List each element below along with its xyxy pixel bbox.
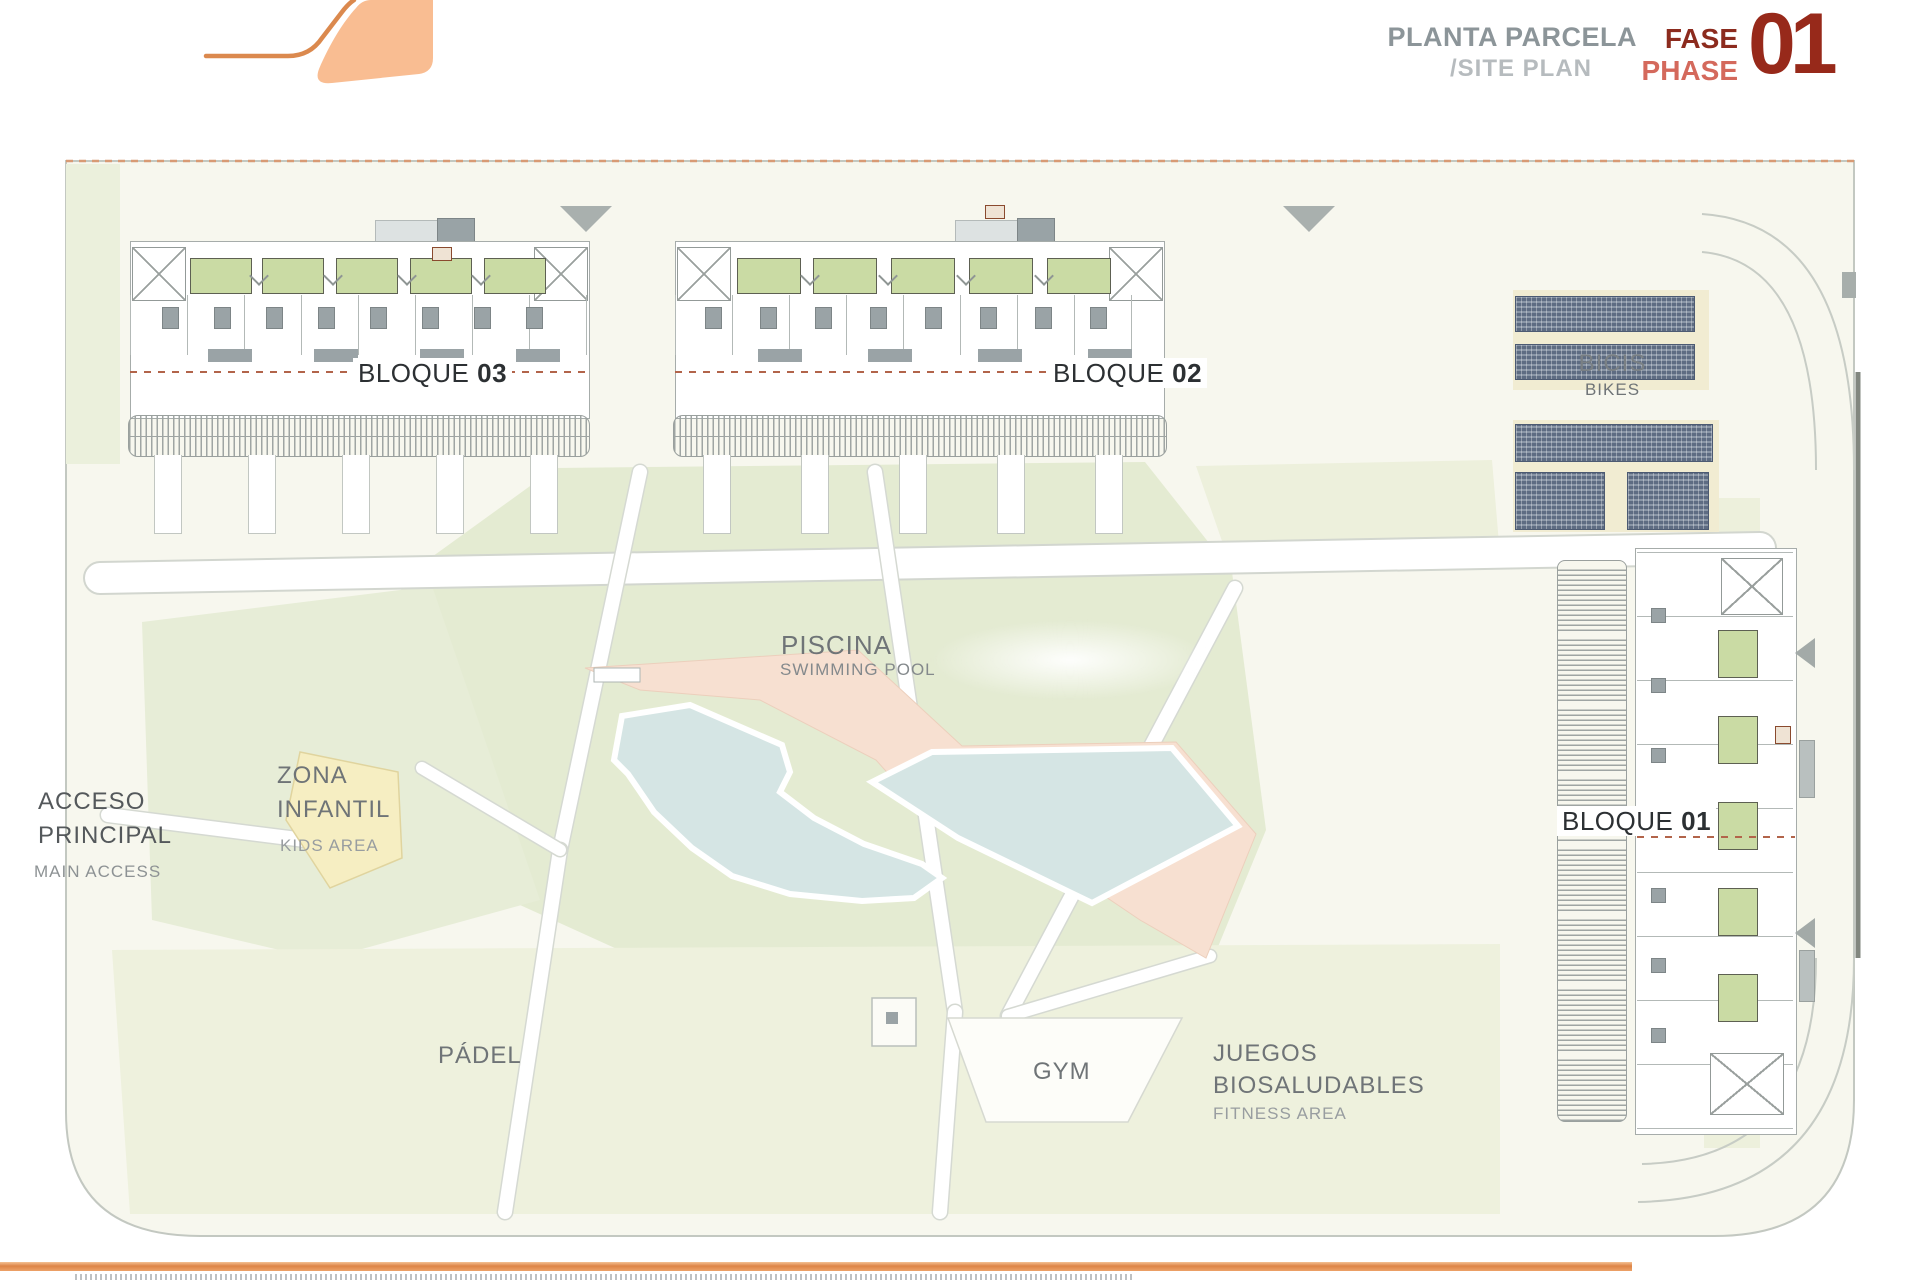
terrace-garden: [1718, 802, 1758, 850]
furniture: [1651, 1028, 1666, 1043]
label-kids-area: KIDS AREA: [280, 836, 379, 856]
label-zona: ZONA: [277, 762, 348, 790]
terrace-garden: [336, 258, 398, 294]
label-piscina: PISCINA: [781, 630, 892, 661]
parking-pergola: [128, 415, 590, 457]
furniture: [870, 307, 887, 329]
gym-equipment: [886, 1012, 898, 1024]
furniture: [474, 307, 491, 329]
furniture: [1651, 748, 1666, 763]
terrace-garden: [484, 258, 546, 294]
label-gym: GYM: [1033, 1058, 1091, 1086]
furniture: [760, 307, 777, 329]
terrace-garden: [813, 258, 877, 294]
walkway-stub: [436, 455, 464, 534]
corner-unit: [1710, 1053, 1784, 1115]
furniture: [1651, 678, 1666, 693]
furniture: [1090, 307, 1107, 329]
furniture: [980, 307, 997, 329]
furniture: [1651, 888, 1666, 903]
bike-rack: [1515, 424, 1713, 462]
bench: [868, 349, 912, 362]
label-bicis: BICIS: [1505, 350, 1720, 378]
watermark: [930, 620, 1210, 700]
bench: [314, 349, 358, 362]
label-main-access: MAIN ACCESS: [34, 862, 161, 882]
corner-unit: [1721, 558, 1783, 615]
label-biosaludables: BIOSALUDABLES: [1213, 1072, 1425, 1100]
label-bloque-03: BLOQUE 03: [353, 358, 512, 389]
bike-rack: [1627, 472, 1709, 530]
entrance-marker-icon: [1795, 918, 1815, 948]
terrace-garden: [262, 258, 324, 294]
walkway-stub: [801, 455, 829, 534]
page: { "header": { "title_es": "PLANTA PARCEL…: [0, 0, 1920, 1280]
utility-box: [1775, 726, 1791, 744]
label-infantil: INFANTIL: [277, 796, 390, 824]
bloque-word: BLOQUE: [1053, 358, 1164, 388]
bloque-number: 03: [477, 358, 507, 388]
bench: [978, 349, 1022, 362]
furniture: [422, 307, 439, 329]
parking-pergola: [1557, 560, 1627, 1122]
bike-parking-area: [1505, 268, 1720, 536]
bike-rack: [1515, 296, 1695, 332]
building-bloque-01: [1505, 548, 1817, 1140]
furniture: [705, 307, 722, 329]
walkway-stub: [342, 455, 370, 534]
bloque-word: BLOQUE: [1562, 806, 1673, 836]
bench: [516, 349, 560, 362]
parking-pergola: [673, 415, 1167, 457]
furniture: [1651, 608, 1666, 623]
bloque-number: 02: [1172, 358, 1202, 388]
walkway-stub: [1095, 455, 1123, 534]
terrace-garden: [410, 258, 472, 294]
furniture: [1035, 307, 1052, 329]
label-fitness-area: FITNESS AREA: [1213, 1104, 1347, 1124]
walkway-stub: [899, 455, 927, 534]
label-juegos: JUEGOS: [1213, 1040, 1318, 1068]
entrance-marker-icon: [1795, 638, 1815, 668]
unit-dividers: [130, 295, 588, 355]
label-acceso: ACCESO: [38, 788, 145, 816]
furniture: [925, 307, 942, 329]
walkway-stub: [248, 455, 276, 534]
terrace-garden: [1047, 258, 1111, 294]
furniture: [266, 307, 283, 329]
furniture: [318, 307, 335, 329]
terrace-garden: [190, 258, 252, 294]
pool-steps: [594, 668, 640, 682]
utility-box: [985, 205, 1005, 219]
walkway-stub: [154, 455, 182, 534]
bike-rack: [1515, 472, 1605, 530]
terrace-garden: [737, 258, 801, 294]
walkway-stub: [703, 455, 731, 534]
label-swimming-pool: SWIMMING POOL: [780, 660, 936, 680]
bench: [208, 349, 252, 362]
terrace-garden: [1718, 974, 1758, 1022]
furniture: [1651, 958, 1666, 973]
logo-shape: [318, 0, 433, 83]
furniture: [370, 307, 387, 329]
terrace-garden: [1718, 716, 1758, 764]
terrace-garden: [1718, 630, 1758, 678]
label-principal: PRINCIPAL: [38, 822, 172, 850]
corner-unit: [1109, 247, 1163, 301]
furniture: [526, 307, 543, 329]
furniture: [162, 307, 179, 329]
side-pad: [1799, 740, 1815, 798]
utility-box: [432, 247, 452, 261]
label-bloque-02: BLOQUE 02: [1048, 358, 1207, 389]
corner-unit: [132, 247, 186, 301]
furniture: [214, 307, 231, 329]
bench: [758, 349, 802, 362]
side-pad: [1799, 950, 1815, 1002]
label-bloque-01: BLOQUE 01: [1557, 806, 1716, 837]
label-bikes: BIKES: [1505, 380, 1720, 400]
walkway-stub: [997, 455, 1025, 534]
terrace-garden: [1718, 888, 1758, 936]
brand-logo: [0, 0, 460, 95]
walkway-stub: [530, 455, 558, 534]
bloque-word: BLOQUE: [358, 358, 469, 388]
label-padel: PÁDEL: [438, 1042, 522, 1070]
bloque-number: 01: [1681, 806, 1711, 836]
corner-unit: [677, 247, 731, 301]
furniture: [815, 307, 832, 329]
terrace-garden: [969, 258, 1033, 294]
terrace-garden: [891, 258, 955, 294]
lawn-top-left: [66, 164, 120, 464]
